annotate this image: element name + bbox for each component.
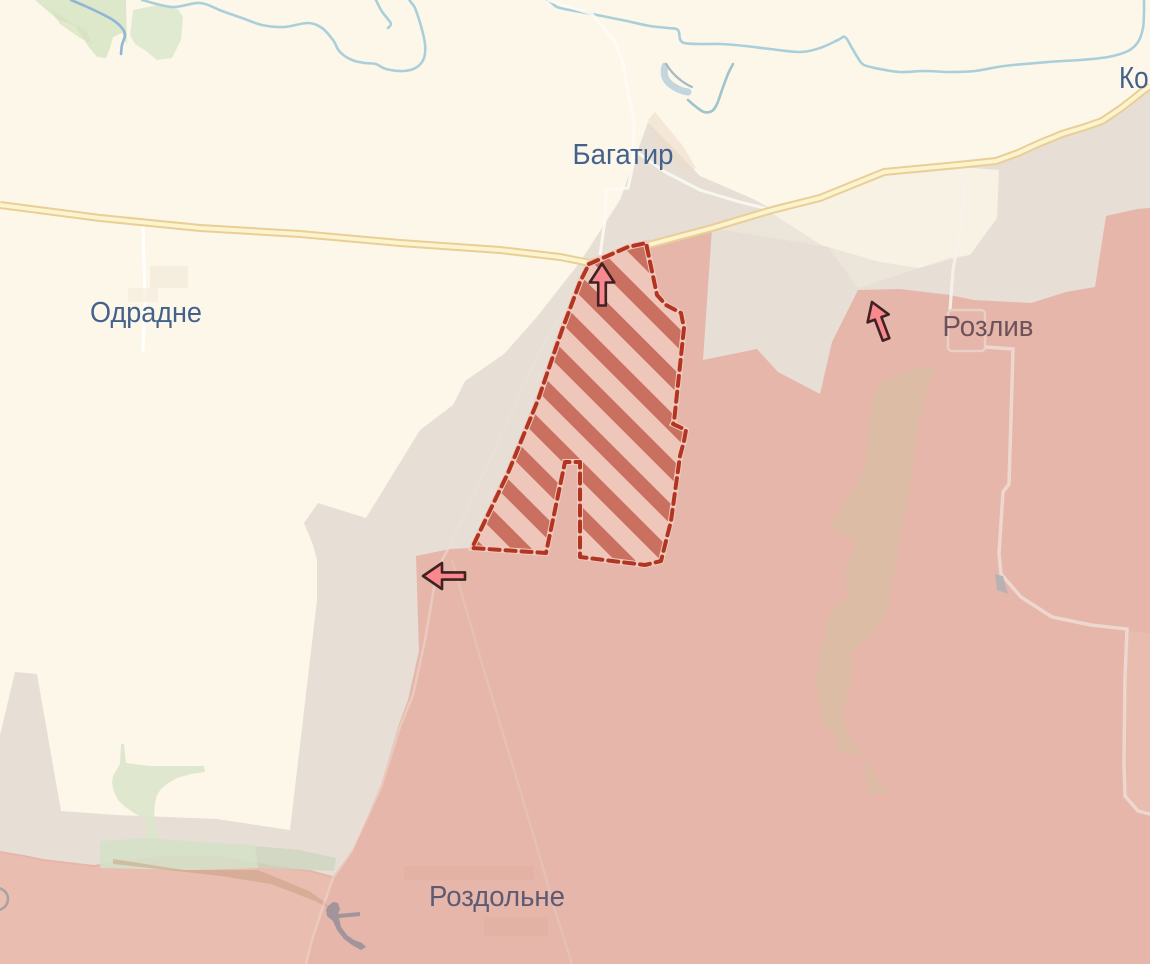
svg-text:Ком: Ком [1119,61,1150,96]
svg-text:Розлив: Розлив [943,310,1034,343]
svg-text:Одрадне: Одрадне [90,296,202,328]
svg-text:Роздольне: Роздольне [429,879,565,912]
svg-text:Багатир: Багатир [573,137,674,170]
